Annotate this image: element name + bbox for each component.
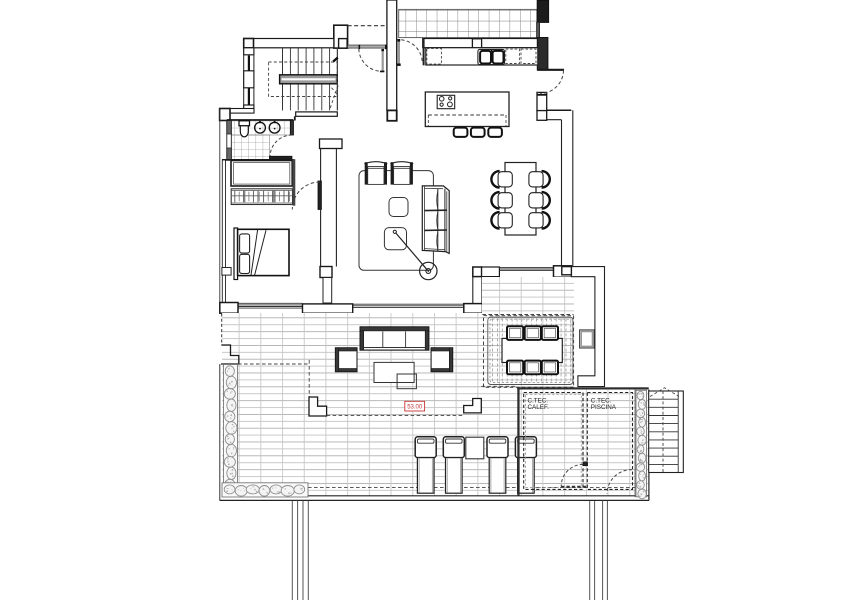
- svg-text:PISCINA: PISCINA: [591, 404, 617, 411]
- svg-text:CALEF.: CALEF.: [528, 404, 550, 411]
- svg-text:53.00: 53.00: [407, 405, 423, 411]
